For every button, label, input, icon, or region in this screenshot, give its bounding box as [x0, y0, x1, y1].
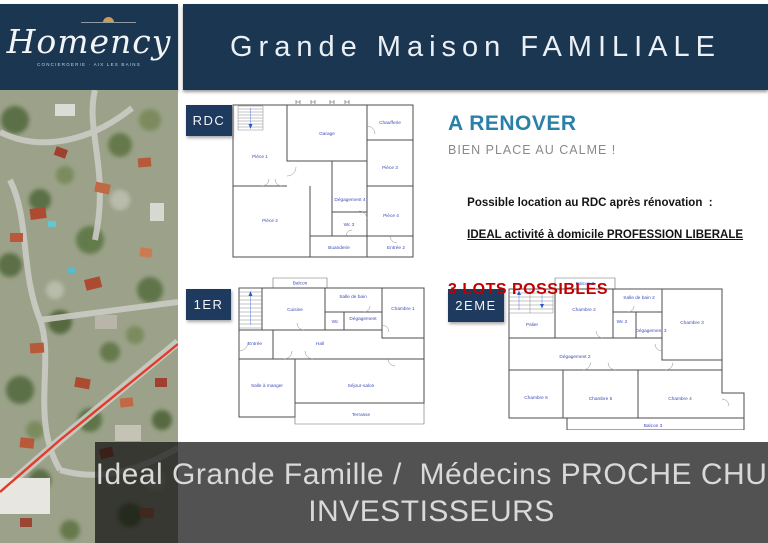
room-label: Chambre 3	[680, 320, 704, 326]
footer-line2: INVESTISSEURS	[308, 493, 555, 530]
floorplan-1er: Balcon Cuisine Salle de bain Wc Dégageme…	[238, 277, 425, 425]
room-label: Dégagement 2	[559, 354, 591, 360]
floor-label-1er-text: 1ER	[194, 297, 224, 312]
walls	[233, 105, 413, 257]
room-label: Pièce 4	[383, 213, 399, 219]
floor-label-rdc: RDC	[186, 105, 232, 136]
page-title: Grande Maison FAMILIALE	[230, 31, 721, 64]
room-label: Balcon 3	[644, 423, 663, 429]
door-arcs	[262, 126, 397, 243]
room-label: Pièce 3	[382, 165, 398, 171]
floor-label-2eme-text: 2EME	[455, 298, 496, 313]
room-label: Dégagement 3	[635, 328, 667, 334]
brand-logo: Homency CONCIERGERIE · AIX LES BAINS	[0, 4, 178, 90]
room-label: Hall	[316, 341, 324, 347]
window-ticks	[296, 100, 349, 104]
stairs-icon	[239, 288, 262, 328]
rental-note-line1: Possible location au RDC après rénovatio…	[467, 197, 712, 209]
room-label: Chambre 4	[668, 396, 692, 402]
room-label: Chambre 6	[524, 395, 548, 401]
floor-label-1er: 1ER	[186, 289, 231, 320]
footer-banner: Ideal Grande Famille / Médecins PROCHE C…	[95, 442, 768, 543]
room-label: Wc 3	[344, 222, 355, 228]
room-label: Wc 2	[617, 319, 628, 325]
floor-label-rdc-text: RDC	[193, 113, 226, 128]
floorplan-rdc: Garage Chaufferie Pièce 1 Pièce 3 Dégage…	[232, 97, 414, 258]
room-label: Chambre 2	[572, 307, 596, 313]
rental-note: Possible location au RDC après rénovatio…	[448, 179, 760, 259]
room-label: Cuisine	[287, 307, 303, 313]
room-label: Salle de bain	[339, 294, 367, 300]
room-label: Salle à manger	[251, 383, 283, 389]
room-label: Chambre 1	[391, 306, 415, 312]
lots-possibles: 3 LOTS POSSIBLES	[448, 281, 760, 299]
room-label: Chambre 5	[589, 396, 613, 402]
brand-tagline: CONCIERGERIE · AIX LES BAINS	[0, 62, 178, 67]
room-label: Buanderie	[328, 245, 350, 251]
brand-name: Homency	[0, 22, 178, 61]
room-label: Palier	[526, 322, 539, 328]
subheadline-calme: BIEN PLACE AU CALME !	[448, 143, 760, 157]
room-label: Terrasse	[352, 412, 371, 418]
rental-note-line2: IDEAL activité à domicile PROFESSION LIB…	[467, 229, 743, 241]
slide: Homency CONCIERGERIE · AIX LES BAINS Gra…	[0, 0, 768, 543]
room-label: Garage	[319, 131, 335, 137]
footer-line1: Ideal Grande Famille / Médecins PROCHE C…	[96, 456, 768, 493]
room-label: Entrée 2	[387, 245, 405, 251]
property-details: A RENOVER BIEN PLACE AU CALME ! Possible…	[448, 112, 760, 299]
stairs-icon	[238, 106, 263, 130]
room-label: Balcon	[293, 281, 308, 287]
room-label: Chaufferie	[379, 120, 401, 126]
room-label: Dégagement	[349, 316, 377, 322]
title-banner: Grande Maison FAMILIALE	[183, 4, 768, 90]
floorplan-2eme: Balcon 2 Chambre 2 Salle de bain 2 Wc 2 …	[508, 277, 745, 430]
room-label: Dégagement 4	[334, 197, 366, 203]
headline-a-renover: A RENOVER	[448, 112, 760, 136]
room-label: Wc	[332, 319, 339, 325]
room-label: Pièce 1	[252, 154, 268, 160]
room-label: Pièce 2	[262, 218, 278, 224]
door-arcs	[583, 306, 729, 406]
room-label: Séjour-salon	[348, 383, 375, 389]
room-label: Entrée	[248, 341, 262, 347]
walls	[509, 289, 744, 430]
